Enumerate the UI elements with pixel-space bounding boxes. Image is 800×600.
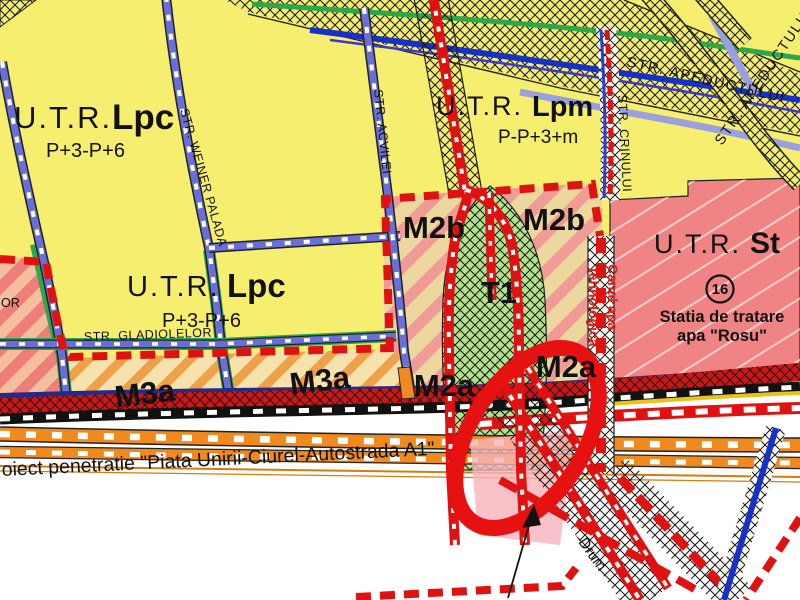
zone-label-utr-lpc-1: U.T.R. bbox=[14, 100, 112, 135]
zone-label-m2a-right: M2a bbox=[536, 349, 597, 384]
st-name-line2: apa "Rosu" bbox=[677, 327, 767, 345]
crinului-corridor bbox=[601, 26, 611, 200]
zone-label-m2a-left: M2a bbox=[414, 368, 475, 403]
zone-label-utr-lpc-2: U.T.R. bbox=[127, 271, 220, 303]
zone-regime-lpc-1: P+3-P+6 bbox=[46, 140, 125, 162]
canal-label-line2: tehnologica bbox=[586, 268, 602, 347]
zone-label-m2b-right: M2b bbox=[523, 202, 585, 237]
canal-label-line1: Canal apa bbox=[605, 264, 621, 330]
street-label-partial-left: OR bbox=[1, 296, 20, 310]
zone-regime-lpm: P-P+3+m bbox=[498, 127, 578, 148]
zone-label-utr-st: U.T.R. bbox=[654, 229, 741, 259]
zone-label-m2b-left: M2b bbox=[403, 210, 465, 245]
zone-code-lpc-1: Lpc bbox=[112, 98, 174, 137]
st-name-line1: Statia de tratare bbox=[660, 308, 785, 326]
zone-label-t1: T1 bbox=[481, 275, 517, 310]
zone-label-m3a-right: M3a bbox=[288, 359, 353, 401]
st-number: 16 bbox=[712, 281, 729, 298]
zone-st bbox=[610, 178, 800, 390]
map-svg: U.T.R. Lpc P+3-P+6 U.T.R. Lpc P+3-P+6 U.… bbox=[0, 0, 800, 600]
zoning-map-canvas: U.T.R. Lpc P+3-P+6 U.T.R. Lpc P+3-P+6 U.… bbox=[0, 0, 800, 600]
zone-code-lpc-2: Lpc bbox=[227, 267, 286, 304]
zone-label-utr-lpm: U.T.R. bbox=[436, 91, 523, 121]
zone-label-m3a-left: M3a bbox=[113, 372, 178, 414]
zone-code-st: St bbox=[750, 227, 780, 260]
zone-code-lpm: Lpm bbox=[532, 91, 593, 123]
